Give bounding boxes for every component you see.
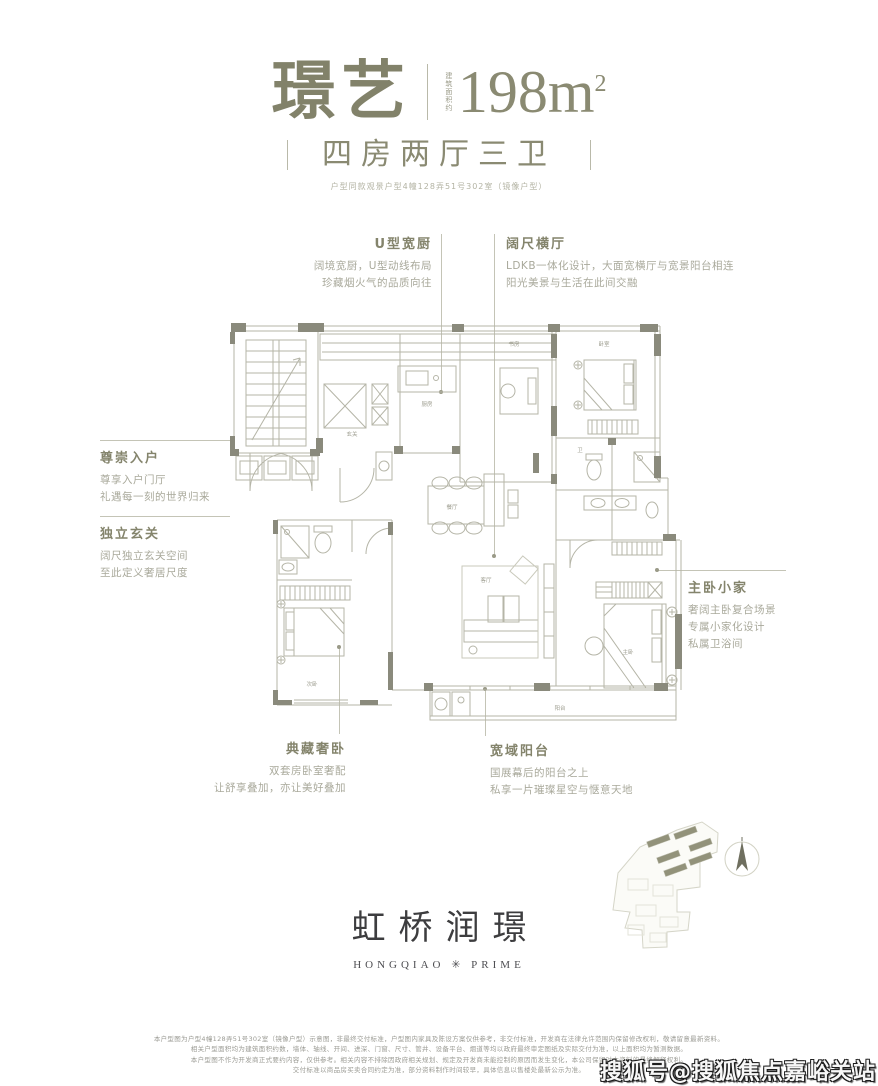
title-divider: [427, 64, 428, 120]
rule-entry: [100, 440, 230, 441]
annotation-line: 专属小家化设计: [688, 619, 848, 636]
room-label-study: 书房: [508, 340, 520, 348]
room-label-master: 主卧: [622, 648, 634, 656]
room-label-bedroom3: 次卧: [306, 680, 318, 688]
annotation-line: 私享一片璀璨星空与惬意天地: [490, 782, 720, 799]
annotation-title: 主卧小家: [688, 577, 848, 596]
annotation-title: 阔尺横厅: [506, 233, 776, 252]
annotation-suite: 典藏奢卧 双套房卧室奢配 让舒享叠加，亦让美好叠加: [200, 738, 346, 797]
unit-note: 户型同款观景户型4幢128弄51号302室（镜像户型）: [0, 181, 878, 192]
subtitle-row: 四房两厅三卫: [0, 140, 878, 170]
disclaimer-line: 本户型图为户型4幢128弄51号302室（镜像户型）示意图，非最终交付标准，户型…: [129, 1034, 749, 1044]
plan-room-labels: 厨房 书房 卧室 餐厅 客厅 主卧 次卧 阳台 玄关 卫: [306, 340, 634, 712]
annotation-line: 私属卫浴间: [688, 636, 848, 653]
floorplan-drawing: 厨房 书房 卧室 餐厅 客厅 主卧 次卧 阳台 玄关 卫: [220, 298, 710, 738]
floorplan-poster: 璟艺 建筑面积约 198m2 四房两厅三卫 户型同款观景户型4幢128弄51号3…: [0, 0, 878, 1086]
siteplan-map: [598, 813, 780, 965]
title-row: 璟艺 建筑面积约 198m2: [0, 60, 878, 124]
annotation-kitchen: U型宽厨 阔境宽厨，U型动线布局 珍藏烟火气的品质向往: [268, 233, 432, 292]
header: 璟艺 建筑面积约 198m2 四房两厅三卫 户型同款观景户型4幢128弄51号3…: [0, 60, 878, 192]
area-number: 198m: [458, 59, 595, 125]
annotation-line: 国展幕后的阳台之上: [490, 765, 720, 782]
rule-foyer: [100, 516, 230, 517]
plan-walls-thin: [234, 326, 681, 720]
plan-furniture-light: [462, 556, 538, 658]
room-label-bedroom2: 卧室: [598, 340, 610, 348]
annotation-line: 阔境宽厨，U型动线布局: [268, 258, 432, 275]
room-label-balcony: 阳台: [554, 704, 566, 712]
annotation-balcony: 宽域阳台 国展幕后的阳台之上 私享一片璀璨星空与惬意天地: [490, 740, 720, 799]
compass-icon: [725, 837, 759, 876]
annotation-line: 珍藏烟火气的品质向往: [268, 275, 432, 292]
area-block: 建筑面积约 198m2: [444, 62, 606, 122]
annotation-line: 让舒享叠加，亦让美好叠加: [200, 780, 346, 797]
subtitle-tick-left: [287, 140, 288, 170]
watermark: 搜狐号@搜狐焦点嘉峪关站: [600, 1054, 876, 1086]
annotation-line: 奢阔主卧复合场景: [688, 602, 848, 619]
page-title: 璟艺: [271, 60, 411, 124]
room-label-living: 客厅: [480, 576, 492, 584]
room-label-kitchen: 厨房: [421, 400, 433, 408]
annotation-hall: 阔尺横厅 LDKB一体化设计，大面宽横厅与宽景阳台相连 阳光美景与生活在此间交融: [506, 233, 776, 292]
room-label-foyer: 玄关: [346, 430, 358, 438]
area-prefix-label: 建筑面积约: [444, 71, 452, 113]
subtitle-tick-right: [590, 140, 591, 170]
room-label-bath: 卫: [577, 447, 583, 454]
annotation-line: 双套房卧室奢配: [200, 763, 346, 780]
layout-subtitle: 四房两厅三卫: [322, 140, 556, 170]
annotation-master: 主卧小家 奢阔主卧复合场景 专属小家化设计 私属卫浴间: [688, 577, 848, 653]
room-label-dining: 餐厅: [446, 503, 458, 511]
annotation-title: 宽域阳台: [490, 740, 720, 759]
area-superscript: 2: [595, 71, 607, 97]
annotation-line: 阳光美景与生活在此间交融: [506, 275, 776, 292]
area-value: 198m2: [458, 62, 607, 122]
annotation-line: LDKB一体化设计，大面宽横厅与宽景阳台相连: [506, 258, 776, 275]
annotation-title: 典藏奢卧: [200, 738, 346, 757]
annotation-title: U型宽厨: [268, 233, 432, 252]
